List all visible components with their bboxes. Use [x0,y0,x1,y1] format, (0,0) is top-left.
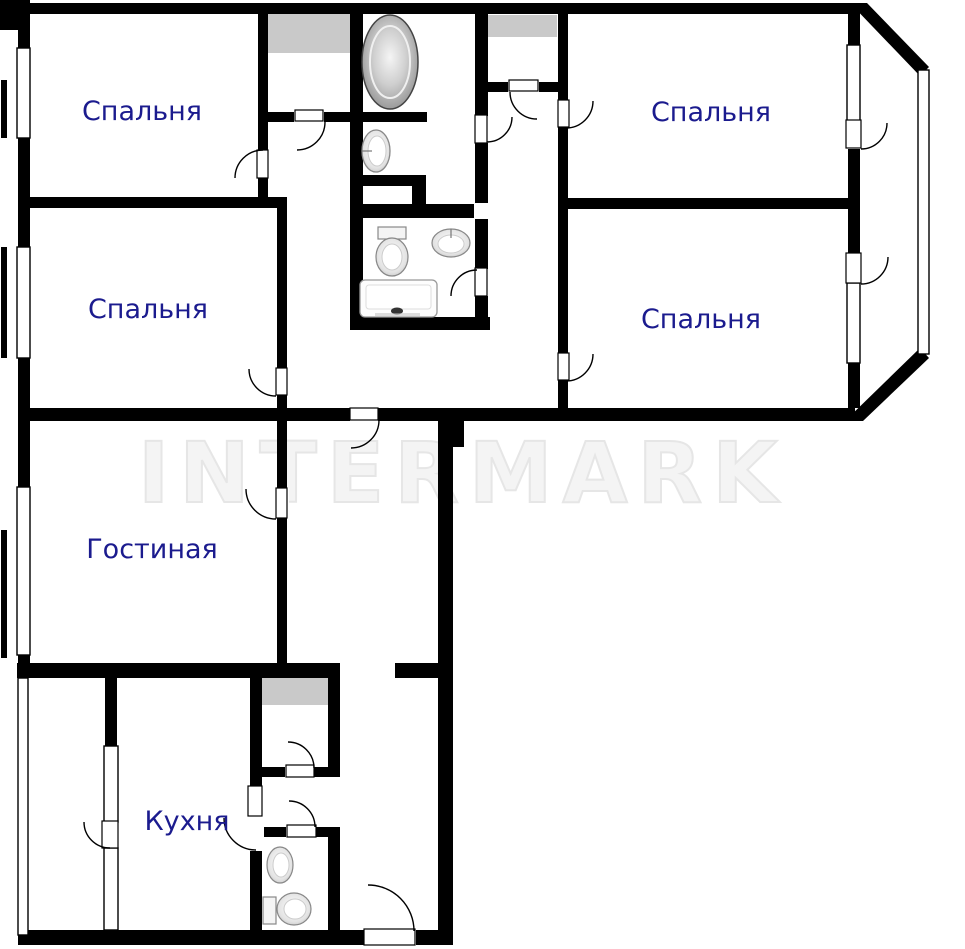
wall-living-bottom [17,663,340,678]
door-leaf-bathroom [475,115,487,143]
wall-closet2-right [328,663,340,777]
toilet-wc1-bowl-inner [382,244,402,270]
shaft-top-closet [268,14,350,53]
window-kitchen [104,746,118,822]
door-arc-bedroom4 [566,354,593,381]
door-leaf-hall [350,408,378,420]
wall-hall-right [438,421,453,945]
window-bedroom1 [17,48,30,138]
window-bedroom2 [17,247,30,358]
sill-line-bedroom2 [1,247,7,358]
door-arc-entrance [368,885,414,931]
wall-bedroom1-bottom [30,197,287,208]
wall-bath-jog-b [412,175,426,206]
window-kitchen-lower [104,848,118,930]
washing-machine-label [375,313,420,316]
door-leaf-kitchen [248,786,262,816]
door-arc-balcony2 [861,257,888,284]
door-leaf-corridor-top [509,80,538,91]
door-arc-bedroom2 [249,369,276,396]
washing-machine-top [366,285,431,309]
sill-line-living [1,530,7,658]
toilet-wc2-tank [263,897,276,924]
glazing-balcony-right [918,70,929,354]
door-arc-closet1 [297,122,325,150]
wall-bath-jog-a [361,175,414,186]
door-arc-wc1 [451,270,477,296]
wall-wc2-right [328,835,340,930]
toilet-wc1-tank [378,227,406,239]
door-leaf-living [276,488,287,518]
label-kitchen: Кухня [144,806,229,837]
door-leaf-bedroom4 [558,353,569,380]
washbasin-wc2-bowl [273,853,289,877]
wall-corridor-right [558,14,568,408]
window-bedroom3 [847,45,860,122]
windows [17,45,929,935]
door-arc-bathroom [487,117,512,142]
door-arc-corridor-top [510,92,537,119]
label-bedroom-4: Спальня [641,304,761,335]
wall-living-right [277,421,287,663]
window-bedroom4 [847,283,860,363]
wall-wc1-bottom [350,317,490,330]
door-arc-wc2 [289,801,315,827]
shaft-bottom-closet [262,677,328,705]
door-leaf-closet1 [295,110,323,121]
door-arc-bedroom3 [566,101,593,128]
door-leaf-wc1 [475,268,487,296]
wall-wc1-top [350,204,477,218]
label-bedroom-1: Спальня [82,96,202,127]
wall-hall-corner [453,421,464,447]
door-arc-living [246,489,276,519]
door-leaf-balcony2 [846,253,861,283]
door-arc-closet2 [288,742,314,768]
wall-top-exterior [18,3,858,14]
wall-middle-horizontal [18,408,855,421]
label-bedroom-2: Спальня [88,294,208,325]
door-leaf-loggia [102,821,118,848]
wall-closet1-bottom [268,112,427,122]
door-leaf-wc2 [287,825,316,837]
door-leaf-entrance [364,929,415,945]
wall-sanitary-left [350,3,363,330]
door-leaf-bedroom3 [558,100,569,127]
door-arc-balcony1 [861,123,887,149]
floor-plan-drawing: Спальня Спальня Спальня Спальня Гостиная… [0,0,965,949]
door-leaf-bedroom1 [257,150,268,178]
wall-chamfer-top [850,3,929,76]
glazing-loggia-left [18,678,28,935]
window-living [17,487,30,655]
wall-kitchen-left [105,678,117,746]
door-leaf-bedroom2 [276,368,287,395]
sill-line-bedroom1 [1,80,7,138]
label-living-room: Гостиная [86,534,218,565]
walls [0,0,929,945]
door-arc-hall [351,420,379,448]
door-leaf-balcony1 [846,120,861,148]
door-leaf-closet2 [286,765,314,777]
shaft-top-corridor [485,15,557,37]
label-bedroom-3: Спальня [651,97,771,128]
toilet-wc2-bowl-inner [284,899,306,919]
wall-bedroom3-4-divider [558,198,848,209]
floor-plan: INTERMARK [0,0,965,949]
